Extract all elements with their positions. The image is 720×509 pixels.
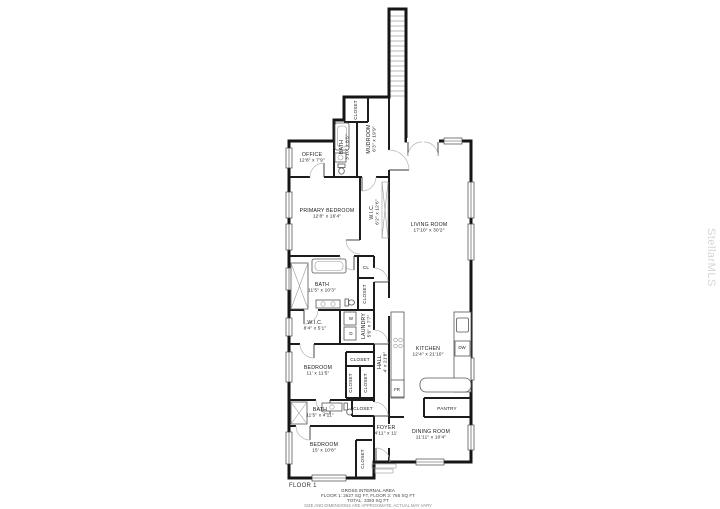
room-label: FOYER4'11" x 11'	[375, 425, 398, 435]
room-label: DINING ROOM11'11" x 10'4"	[412, 429, 450, 439]
room-label: CLOSET	[353, 100, 358, 120]
room-label: PANTRY	[437, 406, 456, 411]
room-label: CLOSET	[363, 373, 368, 393]
room-label: OFFICE12'8" x 7'9"	[299, 152, 325, 162]
floor-plan-drawing: OFFICE12'8" x 7'9"CLOSETBATH3'10" x 8'5"…	[0, 0, 720, 509]
floor-plan-page: OFFICE12'8" x 7'9"CLOSETBATH3'10" x 8'5"…	[0, 0, 720, 509]
room-label: KITCHEN12'4" x 21'10"	[412, 346, 443, 356]
room-label: LAUNDRY5'6" x 7'7"	[361, 313, 371, 339]
room-label: BEDROOM11' x 11'5"	[304, 365, 332, 375]
room-label: PRIMARY BEDROOM12'8" x 16'4"	[300, 208, 355, 218]
fixture-label: FR	[394, 387, 400, 392]
room-label: CL	[363, 265, 370, 270]
stellar-mls-watermark: StellarMLS	[705, 228, 717, 287]
room-label: BATH11'5" x 10'3"	[308, 282, 336, 292]
room-label: BEDROOM15' x 10'8"	[310, 442, 338, 452]
fixture-label: D	[349, 331, 352, 336]
fixture-label: DW	[458, 345, 466, 350]
staircase	[391, 16, 405, 96]
room-label: CLOSET	[353, 406, 373, 411]
room-label: W.I.C.6'2" x 12'6"	[369, 199, 379, 225]
room-label: W.I.C.8'4" x 5'1"	[304, 320, 327, 330]
room-label: CLOSET	[348, 373, 353, 393]
room-label: LIVING ROOM17'10" x 30'2"	[411, 222, 448, 232]
room-label: HALL4' x 21'8"	[377, 351, 387, 372]
floor-label: FLOOR 1	[289, 483, 317, 489]
room-labels: OFFICE12'8" x 7'9"CLOSETBATH3'10" x 8'5"…	[299, 100, 456, 469]
room-label: CLOSET	[362, 284, 367, 304]
room-label: CLOSET	[360, 449, 365, 469]
room-label: MUDROOM6'3" x 19'9"	[366, 124, 376, 153]
fixtures	[291, 123, 471, 424]
footer-disclaimer: SIZE AND DIMENSIONS ARE APPROXIMATE, ACT…	[304, 503, 432, 508]
room-label: CLOSET	[350, 357, 370, 362]
